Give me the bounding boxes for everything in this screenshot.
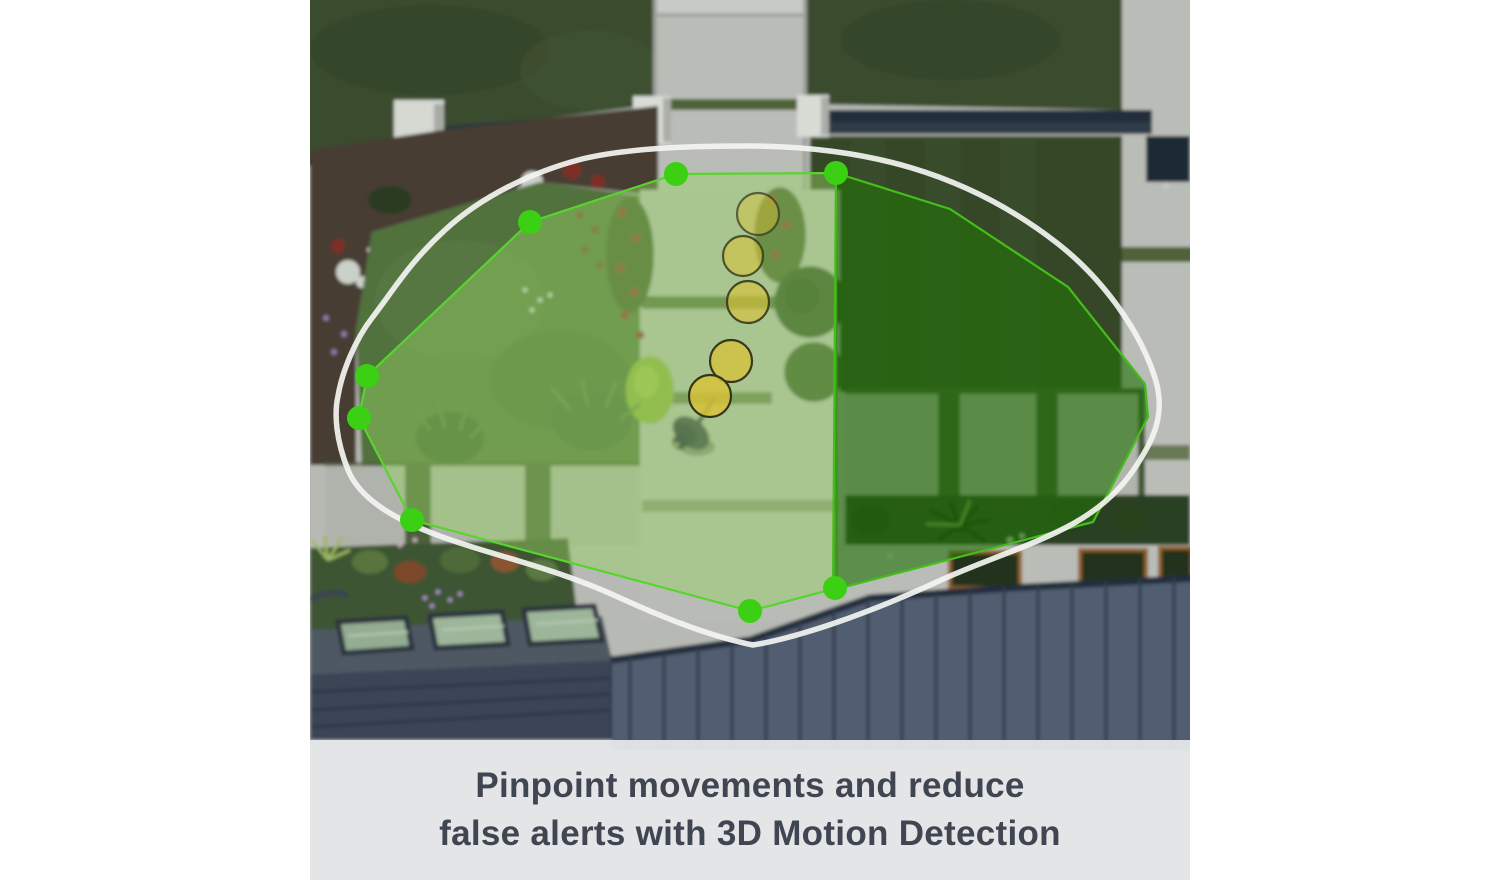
zone-vertex-dot-1 [664,162,688,186]
garden-fence [827,110,1152,122]
garden-fence [827,122,1152,134]
walkway-grass-joint [655,99,805,110]
walkway-step [655,0,805,13]
zone-vertex-dot-6 [400,508,424,532]
caption-line-1: Pinpoint movements and reduce [475,762,1024,810]
fence-end-post [1146,136,1190,182]
fence-detail [1163,183,1169,189]
caption-line-2: false alerts with 3D Motion Detection [439,810,1061,858]
zone-vertex-dot-4 [355,364,379,388]
motion-trail-circle-2 [723,236,763,276]
shrub [1114,507,1146,533]
motion-trail-circle-1 [737,193,779,235]
motion-trail-circle-3 [727,281,769,323]
grass-joint [1145,445,1190,460]
caption-band: Pinpoint movements and reduce false aler… [310,740,1190,880]
lawn-shading [310,5,550,95]
grass-joint [1122,247,1190,262]
product-feature-image: Pinpoint movements and reduce false aler… [0,0,1500,880]
aerial-backyard-photo: Pinpoint movements and reduce false aler… [310,0,1190,880]
motion-trail-circle-5 [689,375,731,417]
shrub [368,186,412,214]
zone-vertex-dot-2 [824,161,848,185]
walkway-step-shadow [655,13,805,17]
gate-post-shade [663,98,671,142]
letterbox-right [1190,0,1500,880]
letterbox-left [0,0,310,880]
zone-vertex-dot-8 [823,576,847,600]
zone-vertex-dot-5 [347,406,371,430]
lawn-shading [840,0,1060,80]
gate-post-shade [821,97,829,135]
zone-vertex-dot-3 [518,210,542,234]
shed-front [310,660,612,740]
zone-vertex-dot-7 [738,599,762,623]
